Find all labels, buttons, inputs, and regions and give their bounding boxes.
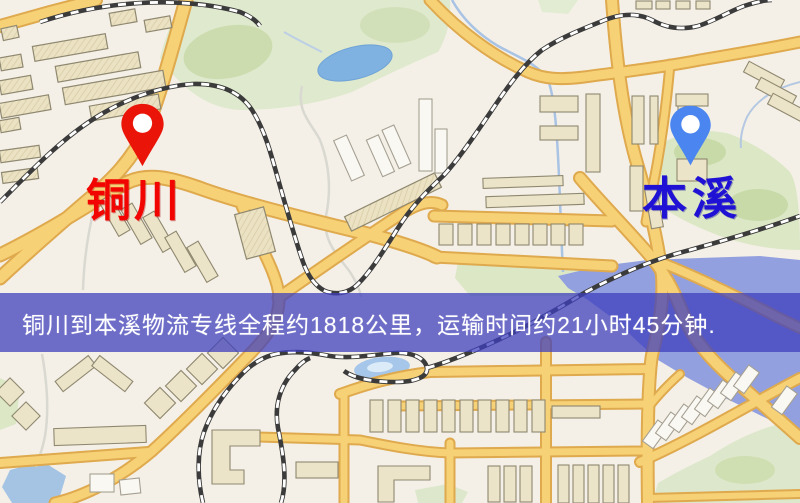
destination-pin-icon[interactable] xyxy=(668,104,713,167)
map-canvas[interactable] xyxy=(0,0,800,503)
destination-pin-body[interactable] xyxy=(670,106,711,166)
route-info-text: 铜川到本溪物流专线全程约1818公里，运输时间约21小时45分钟. xyxy=(0,306,726,340)
origin-pin-body[interactable] xyxy=(121,104,163,166)
destination-city-label: 本溪 xyxy=(642,176,742,221)
route-info-banner: 铜川到本溪物流专线全程约1818公里，运输时间约21小时45分钟. xyxy=(0,293,800,352)
origin-city-label: 铜川 xyxy=(86,178,182,223)
origin-pin-icon[interactable] xyxy=(119,102,166,168)
map-screenshot: 铜川 本溪 铜川到本溪物流专线全程约1818公里，运输时间约21小时45分钟. xyxy=(0,0,800,503)
destination-pin-hole xyxy=(681,115,699,133)
origin-pin-hole xyxy=(133,114,152,133)
